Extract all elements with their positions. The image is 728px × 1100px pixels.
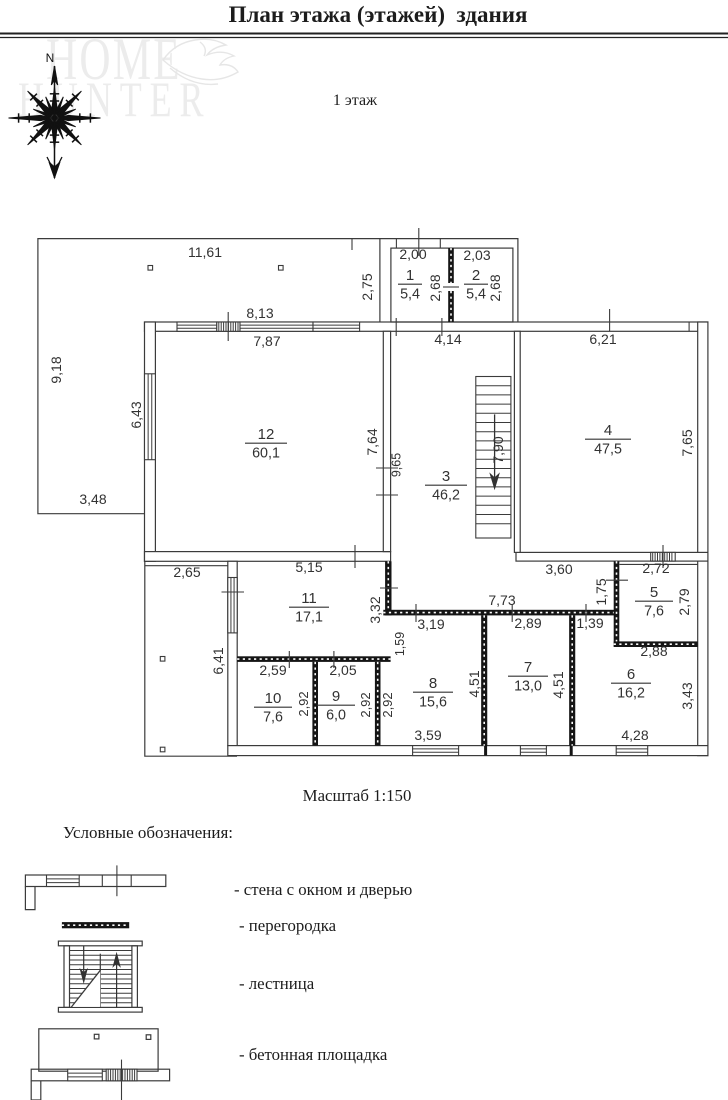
- svg-text:2,59: 2,59: [259, 662, 286, 678]
- svg-text:7,6: 7,6: [263, 709, 283, 725]
- svg-text:Условные обозначения:: Условные обозначения:: [63, 823, 233, 842]
- svg-text:9,65: 9,65: [390, 453, 404, 477]
- svg-text:7,87: 7,87: [253, 333, 280, 349]
- svg-text:4,51: 4,51: [466, 670, 482, 697]
- svg-text:7,64: 7,64: [364, 428, 380, 455]
- svg-text:4: 4: [604, 422, 612, 439]
- svg-text:1: 1: [406, 267, 414, 284]
- svg-text:4,14: 4,14: [434, 331, 461, 347]
- svg-text:13,0: 13,0: [514, 678, 542, 694]
- svg-text:2,72: 2,72: [642, 560, 669, 576]
- svg-text:1,39: 1,39: [576, 615, 603, 631]
- svg-text:2,05: 2,05: [329, 662, 356, 678]
- svg-text:2,79: 2,79: [676, 588, 692, 615]
- svg-text:3,43: 3,43: [679, 682, 695, 709]
- svg-text:2,00: 2,00: [399, 246, 426, 262]
- svg-text:7,73: 7,73: [488, 592, 515, 608]
- svg-text:- бетонная площадка: - бетонная площадка: [239, 1045, 388, 1064]
- svg-text:2,75: 2,75: [359, 273, 375, 300]
- svg-text:6,43: 6,43: [128, 401, 144, 428]
- svg-text:2,92: 2,92: [380, 692, 395, 717]
- svg-text:10: 10: [265, 690, 282, 707]
- svg-text:N: N: [46, 51, 55, 65]
- svg-text:9,18: 9,18: [48, 356, 64, 383]
- svg-text:4,51: 4,51: [550, 671, 566, 698]
- svg-text:- стена с окном и дверью: - стена с окном и дверью: [234, 880, 412, 899]
- svg-text:2,89: 2,89: [514, 615, 541, 631]
- svg-text:6,41: 6,41: [210, 647, 226, 674]
- svg-text:15,6: 15,6: [419, 694, 447, 710]
- svg-text:3,19: 3,19: [417, 616, 444, 632]
- svg-text:План этажа (этажей) здания: План этажа (этажей) здания: [229, 2, 528, 27]
- svg-text:47,5: 47,5: [594, 441, 622, 457]
- svg-text:3,59: 3,59: [414, 727, 441, 743]
- svg-text:Масштаб 1:150: Масштаб 1:150: [303, 786, 412, 805]
- svg-text:5,4: 5,4: [466, 286, 486, 302]
- svg-text:2,68: 2,68: [427, 274, 443, 301]
- svg-text:2,68: 2,68: [487, 274, 503, 301]
- svg-text:6,21: 6,21: [589, 331, 616, 347]
- svg-text:1 этаж: 1 этаж: [333, 92, 378, 109]
- svg-text:8: 8: [429, 675, 437, 692]
- svg-text:7: 7: [524, 659, 532, 676]
- svg-text:5: 5: [650, 584, 658, 601]
- svg-text:1,59: 1,59: [393, 632, 407, 656]
- svg-text:2,03: 2,03: [463, 247, 490, 263]
- svg-text:7,90: 7,90: [490, 436, 506, 463]
- svg-text:3: 3: [442, 468, 450, 485]
- svg-text:2,88: 2,88: [640, 643, 667, 659]
- svg-text:8,13: 8,13: [246, 305, 273, 321]
- svg-text:7,65: 7,65: [679, 429, 695, 456]
- svg-text:16,2: 16,2: [617, 685, 645, 701]
- svg-text:11: 11: [301, 590, 317, 607]
- svg-text:1,75: 1,75: [593, 578, 609, 605]
- svg-text:- лестница: - лестница: [239, 974, 315, 993]
- svg-text:4,28: 4,28: [621, 727, 648, 743]
- svg-text:11,61: 11,61: [188, 244, 222, 260]
- svg-text:2,92: 2,92: [296, 691, 311, 716]
- svg-text:9: 9: [332, 688, 340, 705]
- svg-text:2: 2: [472, 267, 480, 284]
- svg-text:7,6: 7,6: [644, 603, 664, 619]
- svg-text:46,2: 46,2: [432, 487, 460, 503]
- svg-text:60,1: 60,1: [252, 445, 280, 461]
- svg-text:12: 12: [258, 426, 275, 443]
- svg-text:6: 6: [627, 666, 635, 683]
- svg-text:5,4: 5,4: [400, 286, 420, 302]
- svg-text:17,1: 17,1: [295, 609, 323, 625]
- svg-text:2,65: 2,65: [173, 564, 200, 580]
- svg-text:2,92: 2,92: [358, 692, 373, 717]
- svg-text:6,0: 6,0: [326, 707, 346, 723]
- svg-text:5,15: 5,15: [295, 559, 322, 575]
- svg-text:3,32: 3,32: [367, 596, 383, 623]
- svg-text:3,48: 3,48: [79, 491, 106, 507]
- svg-text:3,60: 3,60: [545, 561, 572, 577]
- svg-text:- перегородка: - перегородка: [239, 916, 337, 935]
